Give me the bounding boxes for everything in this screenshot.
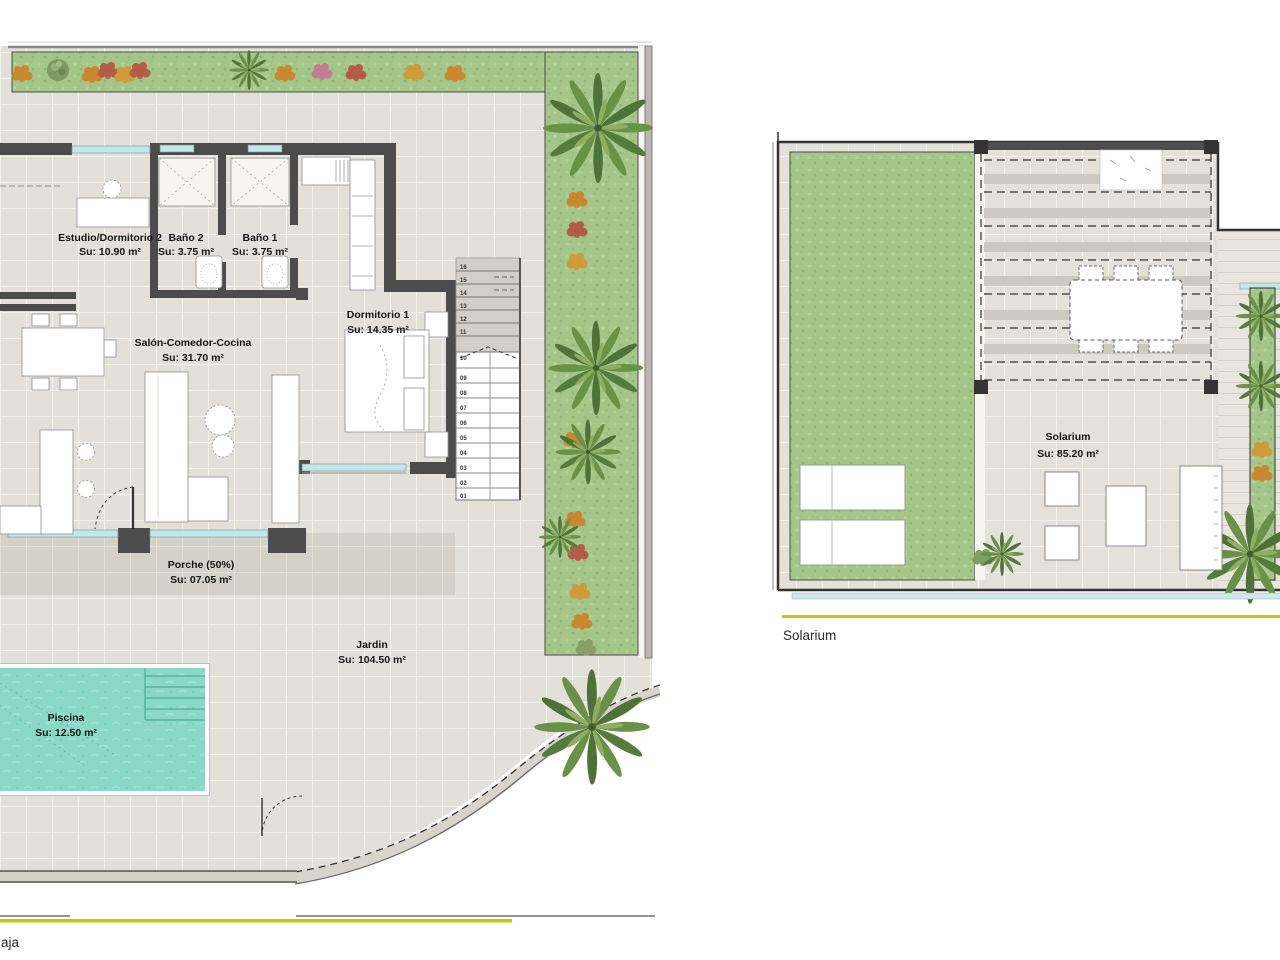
glass-balustrade-bottom: [792, 593, 1280, 599]
porch-pillar: [268, 528, 306, 553]
svg-text:Salón-Comedor-Cocina: Salón-Comedor-Cocina: [135, 337, 252, 349]
svg-text:11: 11: [460, 330, 467, 336]
side-table: [205, 405, 235, 435]
solarium-accent-line: [782, 615, 1280, 618]
svg-text:Estudio/Dormitorio 2: Estudio/Dormitorio 2: [58, 232, 162, 244]
svg-text:Su: 3.75 m²: Su: 3.75 m²: [232, 246, 289, 258]
plot-right-wall: [645, 46, 652, 658]
desk-chair: [103, 180, 121, 198]
sun-lounger: [1180, 466, 1222, 570]
svg-text:05: 05: [460, 436, 467, 442]
shower-tray: [159, 158, 215, 206]
svg-text:12: 12: [460, 317, 467, 323]
svg-text:14: 14: [460, 291, 467, 297]
toilet: [262, 256, 288, 288]
walkway-strip: [975, 152, 985, 580]
svg-text:Su: 3.75 m²: Su: 3.75 m²: [158, 246, 215, 258]
terrace-table: [1045, 526, 1079, 560]
svg-text:Baño 1: Baño 1: [242, 232, 277, 244]
svg-text:Porche (50%): Porche (50%): [168, 559, 235, 571]
svg-text:13: 13: [460, 304, 467, 310]
svg-text:Dormitorio 1: Dormitorio 1: [347, 309, 410, 321]
svg-text:03: 03: [460, 466, 467, 472]
toilet: [196, 256, 222, 288]
svg-text:Jardin: Jardin: [356, 639, 388, 651]
svg-text:02: 02: [460, 481, 467, 487]
svg-text:Su: 104.50 m²: Su: 104.50 m²: [338, 654, 406, 666]
svg-text:Su: 85.20 m²: Su: 85.20 m²: [1037, 448, 1099, 460]
svg-text:Su: 31.70 m²: Su: 31.70 m²: [162, 352, 224, 364]
ground-floor-title: aja: [1, 935, 20, 950]
svg-text:10: 10: [460, 356, 467, 362]
svg-text:Su: 14.35 m²: Su: 14.35 m²: [347, 324, 409, 336]
svg-text:Su: 12.50 m²: Su: 12.50 m²: [35, 727, 97, 739]
solarium-title: Solarium: [783, 628, 836, 643]
svg-text:16: 16: [460, 265, 467, 271]
ground-floor-plan: 16 15 14 13 12 11 10 09 08 07 06 05 04 0…: [0, 0, 660, 960]
svg-text:01: 01: [460, 494, 467, 500]
ground-floor-accent-line: [0, 919, 512, 923]
outdoor-dining-table: [1070, 266, 1182, 352]
svg-text:04: 04: [460, 451, 467, 457]
desk: [77, 198, 149, 227]
tv-sideboard: [272, 375, 299, 523]
boundary-wall-bottom: [0, 871, 297, 882]
terrace-table-large: [1106, 486, 1146, 546]
shower-tray: [231, 158, 289, 206]
solarium-lawn: [790, 152, 975, 580]
plot-right-gap: [638, 46, 645, 658]
svg-text:09: 09: [460, 376, 467, 382]
tree-icon: [47, 59, 69, 81]
svg-text:06: 06: [460, 421, 467, 427]
svg-text:Su: 07.05 m²: Su: 07.05 m²: [170, 574, 232, 586]
staircase: 16 15 14 13 12 11 10 09 08 07 06 05 04 0…: [456, 258, 520, 500]
floorplan-canvas: 16 15 14 13 12 11 10 09 08 07 06 05 04 0…: [0, 0, 1280, 960]
terrace-table: [1045, 472, 1079, 506]
svg-text:Baño 2: Baño 2: [168, 232, 203, 244]
svg-text:07: 07: [460, 406, 467, 412]
svg-text:Piscina: Piscina: [48, 712, 85, 724]
solarium-plan: Solarium Su: 85.20 m² Solarium: [770, 130, 1280, 650]
side-table: [212, 435, 234, 457]
svg-text:15: 15: [460, 278, 467, 284]
svg-text:08: 08: [460, 391, 467, 397]
svg-text:Solarium: Solarium: [1046, 431, 1091, 443]
planter-panel: [1100, 150, 1162, 190]
porch-pillar: [118, 528, 150, 553]
swimming-pool: [0, 664, 209, 795]
svg-text:Su: 10.90 m²: Su: 10.90 m²: [79, 246, 141, 258]
